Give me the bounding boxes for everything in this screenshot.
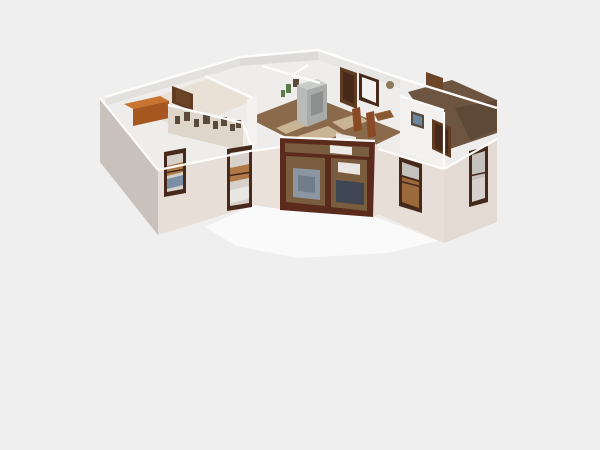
entrance-rug-pattern	[298, 175, 315, 193]
floorplan-canvas	[0, 0, 600, 450]
floorplan-3d-viewport[interactable]	[0, 0, 600, 450]
wreath-decor	[386, 81, 394, 89]
refrigerator-side	[297, 85, 307, 127]
refrigerator-door-panel	[311, 91, 323, 116]
entrance-sofa-navy	[336, 180, 364, 205]
entrance-left-wall	[252, 147, 280, 209]
kitchen-back-door-panel	[343, 71, 354, 104]
window-right-2-glass-bottom	[472, 176, 485, 202]
